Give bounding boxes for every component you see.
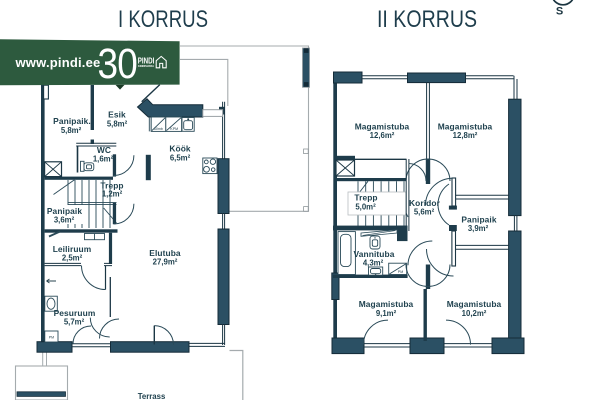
svg-text:12,8m²: 12,8m²: [453, 131, 478, 140]
svg-text:KPM: KPM: [170, 127, 178, 131]
svg-text:30: 30: [98, 40, 137, 87]
svg-text:5,8m²: 5,8m²: [107, 120, 128, 129]
svg-text:Pesuruum: Pesuruum: [54, 308, 96, 318]
svg-text:Koridor: Koridor: [409, 198, 441, 208]
svg-text:Magamistuba: Magamistuba: [359, 299, 414, 309]
svg-text:5,7m²: 5,7m²: [64, 318, 85, 327]
svg-text:Magamistuba: Magamistuba: [355, 122, 410, 132]
svg-text:PM: PM: [49, 336, 54, 340]
svg-text:Panipaik: Panipaik: [461, 215, 496, 225]
svg-text:KINNISVARA: KINNISVARA: [138, 64, 155, 68]
svg-text:I KORRUS: I KORRUS: [118, 6, 208, 33]
svg-text:6,5m²: 6,5m²: [170, 154, 191, 163]
svg-text:60mb: 60mb: [154, 127, 163, 131]
svg-text:27,9m²: 27,9m²: [153, 258, 178, 267]
svg-text:2,5m²: 2,5m²: [62, 254, 83, 263]
svg-text:Elutuba: Elutuba: [149, 248, 181, 258]
svg-text:3,6m²: 3,6m²: [54, 216, 75, 225]
svg-text:10,2m²: 10,2m²: [462, 309, 487, 318]
svg-text:Panipaik.: Panipaik.: [53, 116, 91, 126]
svg-text:WC: WC: [97, 145, 111, 155]
svg-text:4,3m²: 4,3m²: [363, 259, 384, 268]
svg-text:PM: PM: [398, 270, 403, 274]
svg-text:3,9m²: 3,9m²: [468, 224, 489, 233]
svg-text:Trepp: Trepp: [354, 193, 377, 203]
svg-text:1,6m²: 1,6m²: [93, 155, 114, 164]
svg-text:9,1m²: 9,1m²: [376, 309, 397, 318]
svg-text:Vannituba: Vannituba: [354, 249, 395, 259]
svg-text:II KORRUS: II KORRUS: [377, 6, 477, 33]
svg-text:5,8m²: 5,8m²: [61, 126, 82, 135]
svg-text:Magamistuba: Magamistuba: [447, 299, 502, 309]
svg-text:Esik: Esik: [108, 110, 126, 120]
svg-text:5,0m²: 5,0m²: [355, 203, 376, 212]
svg-text:Magamistuba: Magamistuba: [438, 122, 493, 132]
svg-text:S: S: [556, 6, 563, 18]
svg-text:Köök: Köök: [169, 144, 191, 154]
svg-text:Panipaik: Panipaik: [47, 206, 82, 216]
svg-text:5,6m²: 5,6m²: [414, 208, 435, 217]
svg-text:Terrass: Terrass: [138, 392, 166, 400]
svg-text:12,6m²: 12,6m²: [370, 131, 395, 140]
svg-text:1,2m²: 1,2m²: [102, 190, 123, 199]
svg-text:Leiliruum: Leiliruum: [53, 244, 92, 254]
svg-text:www.pindi.ee: www.pindi.ee: [15, 55, 101, 70]
